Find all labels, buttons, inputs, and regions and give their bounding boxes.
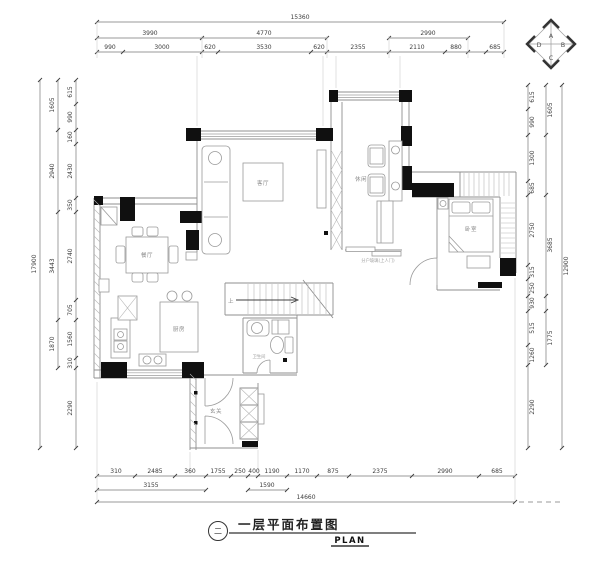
glass-door-note: 分户玻璃(上人门) [361,257,395,264]
dim-label: 1605 [49,97,56,112]
dim-label: 705 [67,304,74,316]
top-dimensions: 15360 3990 4770 2990 990 3000 620 3530 6… [95,14,506,126]
cabinet [377,201,393,243]
furniture-living [202,146,326,254]
bar-stool [182,291,192,301]
dim-label: 350 [67,199,74,211]
room-label-kitchen: 厨房 [173,325,185,333]
dim-label: 2290 [529,399,536,414]
plan-subtitle: PLAN [334,536,365,546]
dim-label: 620 [204,44,216,51]
dim-label: 2940 [49,163,56,178]
bed [449,199,493,252]
dim-label: 1190 [264,468,279,475]
dim-label: 615 [529,91,536,103]
dim-label: 1170 [294,468,309,475]
column-cross-hatch [331,150,342,250]
toilet [285,337,293,353]
dim-label: 875 [327,468,339,475]
furniture-bathroom [247,320,293,354]
room-label-bedroom: 卧室 [465,225,477,233]
console-table [389,141,402,201]
dim-label: 310 [110,468,122,475]
dim-label: 1560 [67,331,74,346]
dim-label: 310 [67,357,74,369]
cabinet [99,279,109,292]
plan-title: 一层平面布置图 [238,517,340,532]
dim-label: 3443 [49,258,56,273]
room-label-living: 客厅 [257,179,269,187]
bench [467,256,490,268]
dim-label: 250 [529,282,536,294]
bar-stool [167,291,177,301]
dim-label: 14660 [296,494,315,501]
left-dimensions: 17900 1605 2940 3443 1870 615 990 160 24… [31,78,78,450]
compass-a-label: A [549,32,554,40]
compass-d-label: D [536,41,541,49]
dim-label: 3990 [142,30,157,37]
dim-label: 1260 [529,347,536,362]
dim-label: 360 [184,468,196,475]
dim-label: 620 [313,44,325,51]
title-block: 二 一层平面布置图 PLAN [209,517,417,546]
dim-label: 1775 [547,330,554,345]
dim-label: 2740 [67,248,74,263]
room-label-dining: 餐厅 [141,251,153,259]
stairs-up-label: 上 [228,297,234,305]
drawing-number-label: 二 [214,527,222,536]
dim-label: 1605 [547,102,554,117]
dim-label: 4770 [256,30,271,37]
dim-label: 880 [450,44,462,51]
dim-label: 17900 [31,254,38,273]
compass-b-label: B [561,41,565,49]
dim-label: 930 [529,297,536,309]
compass: A B C D [527,20,575,68]
bath-cabinet [272,320,289,334]
furniture-bedroom [438,198,493,268]
floor-plan-sheet: 15360 3990 4770 2990 990 3000 620 3530 6… [0,0,600,564]
room-label-entry: 玄关 [210,407,222,415]
dim-label: 3000 [154,44,169,51]
dim-label: 3530 [256,44,271,51]
dim-label: 1870 [49,336,56,351]
dim-label: 615 [67,86,74,98]
dim-label: 990 [529,116,536,128]
dim-label: 400 [248,468,260,475]
dim-label: 315 [529,266,536,278]
dim-label: 3685 [547,237,554,252]
stair-treads-center [236,284,326,314]
floor-plan-drawing: 15360 3990 4770 2990 990 3000 620 3530 6… [0,0,600,564]
dim-label: 2355 [350,44,365,51]
dim-label: 2990 [420,30,435,37]
furniture-dining [99,207,178,292]
dim-label: 990 [104,44,116,51]
dim-label: 685 [489,44,501,51]
dim-label: 2375 [372,468,387,475]
dim-label: 12900 [563,256,570,275]
right-dimensions: 615 990 1300 685 2750 315 250 930 515 12… [526,83,570,450]
dim-label: 160 [67,131,74,143]
tv-cabinet [317,150,326,208]
nightstand [438,198,448,209]
dim-label: 3155 [143,482,158,489]
dim-label: 250 [234,468,246,475]
dim-label: 2990 [437,468,452,475]
dim-label: 1300 [529,150,536,165]
dim-label: 15360 [290,14,309,21]
compass-c-label: C [549,54,554,62]
dim-label: 515 [529,322,536,334]
dim-label: 2110 [409,44,424,51]
dim-label: 1590 [259,482,274,489]
dim-label: 990 [67,111,74,123]
room-label-bath: 卫生间 [253,353,266,360]
dim-label: 685 [529,182,536,194]
dim-label: 2430 [67,163,74,178]
room-label-lounge: 休闲 [355,175,367,183]
furniture-lounge [368,141,402,243]
dim-label: 1755 [210,468,225,475]
dim-label: 2750 [529,222,536,237]
dim-label: 685 [491,468,503,475]
dim-label: 2290 [67,400,74,415]
dim-label: 2485 [147,468,162,475]
